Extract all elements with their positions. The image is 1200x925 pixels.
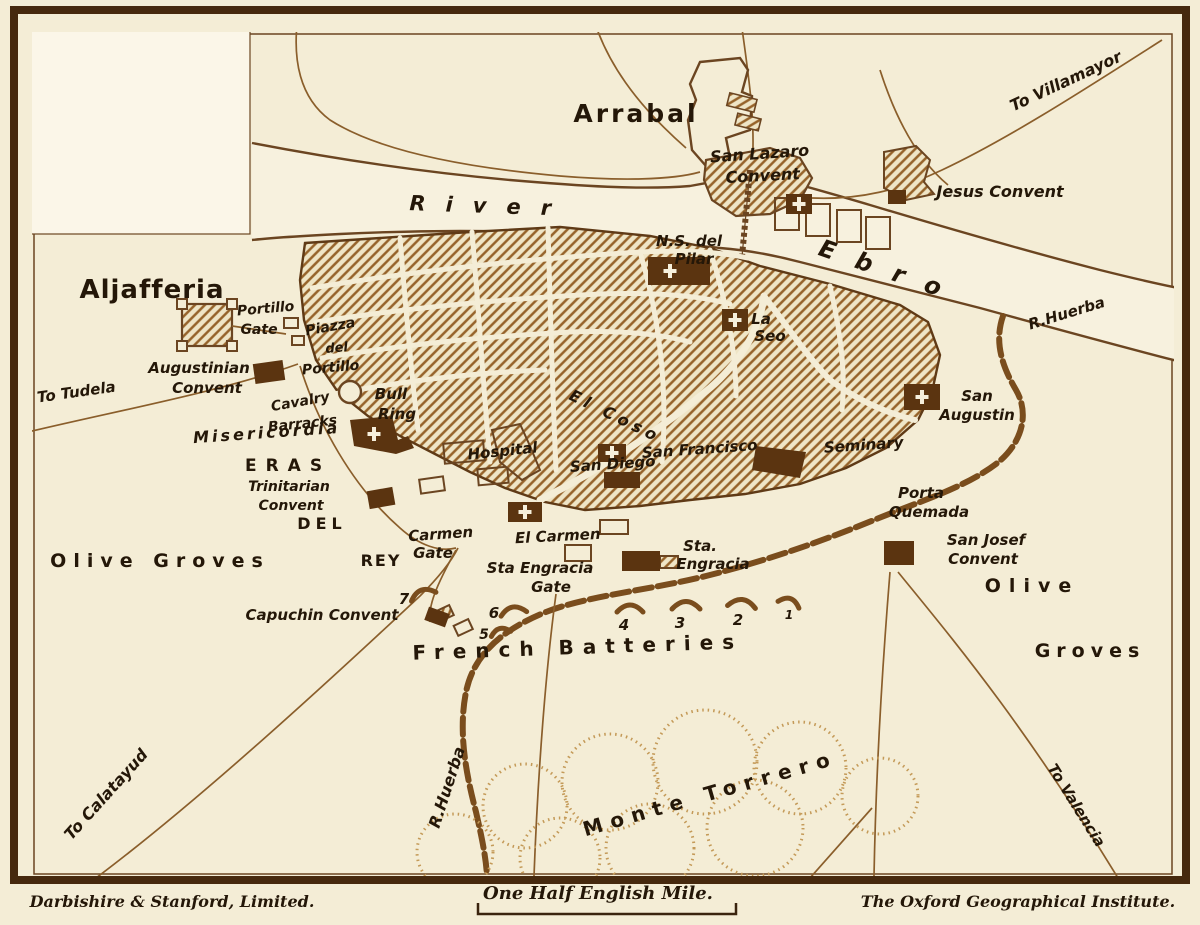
label-battery-4: 4 [618, 616, 629, 634]
label-battery-6: 6 [489, 604, 499, 622]
aljafferia-castle [177, 299, 237, 351]
label-trinitarian1: Trinitarian [248, 479, 330, 495]
label-del: DEL [297, 514, 346, 533]
label-trinitarian2: Convent [258, 498, 324, 514]
label-portillo-gate2: Gate [240, 322, 277, 338]
label-la: La [751, 310, 771, 328]
label-rey: REY [361, 551, 402, 570]
label-groves-east: Groves [1035, 640, 1146, 662]
label-san-lazaro-line2: Convent [725, 164, 802, 187]
label-sta2: Engracia [676, 555, 749, 573]
scale-label: One Half English Mile. [483, 883, 713, 904]
label-ns-del: N.S. del [656, 232, 723, 250]
label-seo: Seo [754, 327, 785, 345]
label-san-augustin2: Augustin [938, 406, 1015, 424]
label-arrabal: Arrabal [573, 99, 698, 128]
label-battery-5: 5 [479, 627, 489, 643]
augustinian-convent-building [253, 360, 285, 384]
label-augustinian2: Convent [172, 379, 243, 397]
imprint-left: Darbishire & Stanford, Limited. [29, 892, 315, 911]
label-battery-1: 1 [785, 608, 793, 622]
inset-box [28, 14, 250, 234]
label-olive-east: Olive [985, 575, 1079, 597]
san-josef-convent-building [884, 541, 914, 565]
label-aljafferia: Aljafferia [79, 275, 224, 305]
sta-engracia-convent [622, 551, 660, 571]
label-sta1: Sta. [683, 537, 717, 555]
label-san-josef2: Convent [948, 550, 1019, 568]
label-bull: Bull [375, 385, 408, 403]
label-sta-engracia-gate2: Gate [531, 578, 571, 596]
label-eras: ERAS [245, 456, 331, 476]
label-san-augustin1: San [961, 387, 993, 405]
label-battery-3: 3 [675, 614, 685, 632]
label-porta1: Porta [898, 484, 944, 502]
san-diego-block [604, 472, 640, 488]
bull-ring-circle [339, 381, 361, 403]
saragossa-siege-map: One Half English Mile. Darbishire & Stan… [0, 0, 1200, 925]
label-pilar: Pilar [675, 250, 715, 268]
map-canvas: One Half English Mile. Darbishire & Stan… [0, 0, 1200, 925]
label-ring: Ring [378, 405, 416, 423]
imprint-right: The Oxford Geographical Institute. [861, 892, 1175, 911]
label-battery-2: 2 [733, 611, 743, 629]
label-sta-engracia-gate1: Sta Engracia [487, 559, 594, 577]
label-porta2: Quemada [889, 503, 969, 521]
label-carmen-gate2: Gate [413, 544, 453, 562]
label-capuchin: Capuchin Convent [246, 606, 400, 624]
label-san-josef1: San Josef [947, 531, 1028, 549]
label-jesus-convent: Jesus Convent [933, 182, 1065, 201]
label-battery-7: 7 [399, 590, 410, 608]
label-augustinian1: Augustinian [147, 359, 250, 377]
label-piazza2: del [325, 340, 349, 357]
jesus-convent-church [888, 190, 906, 204]
label-olive-groves-west: Olive Groves [50, 550, 270, 572]
